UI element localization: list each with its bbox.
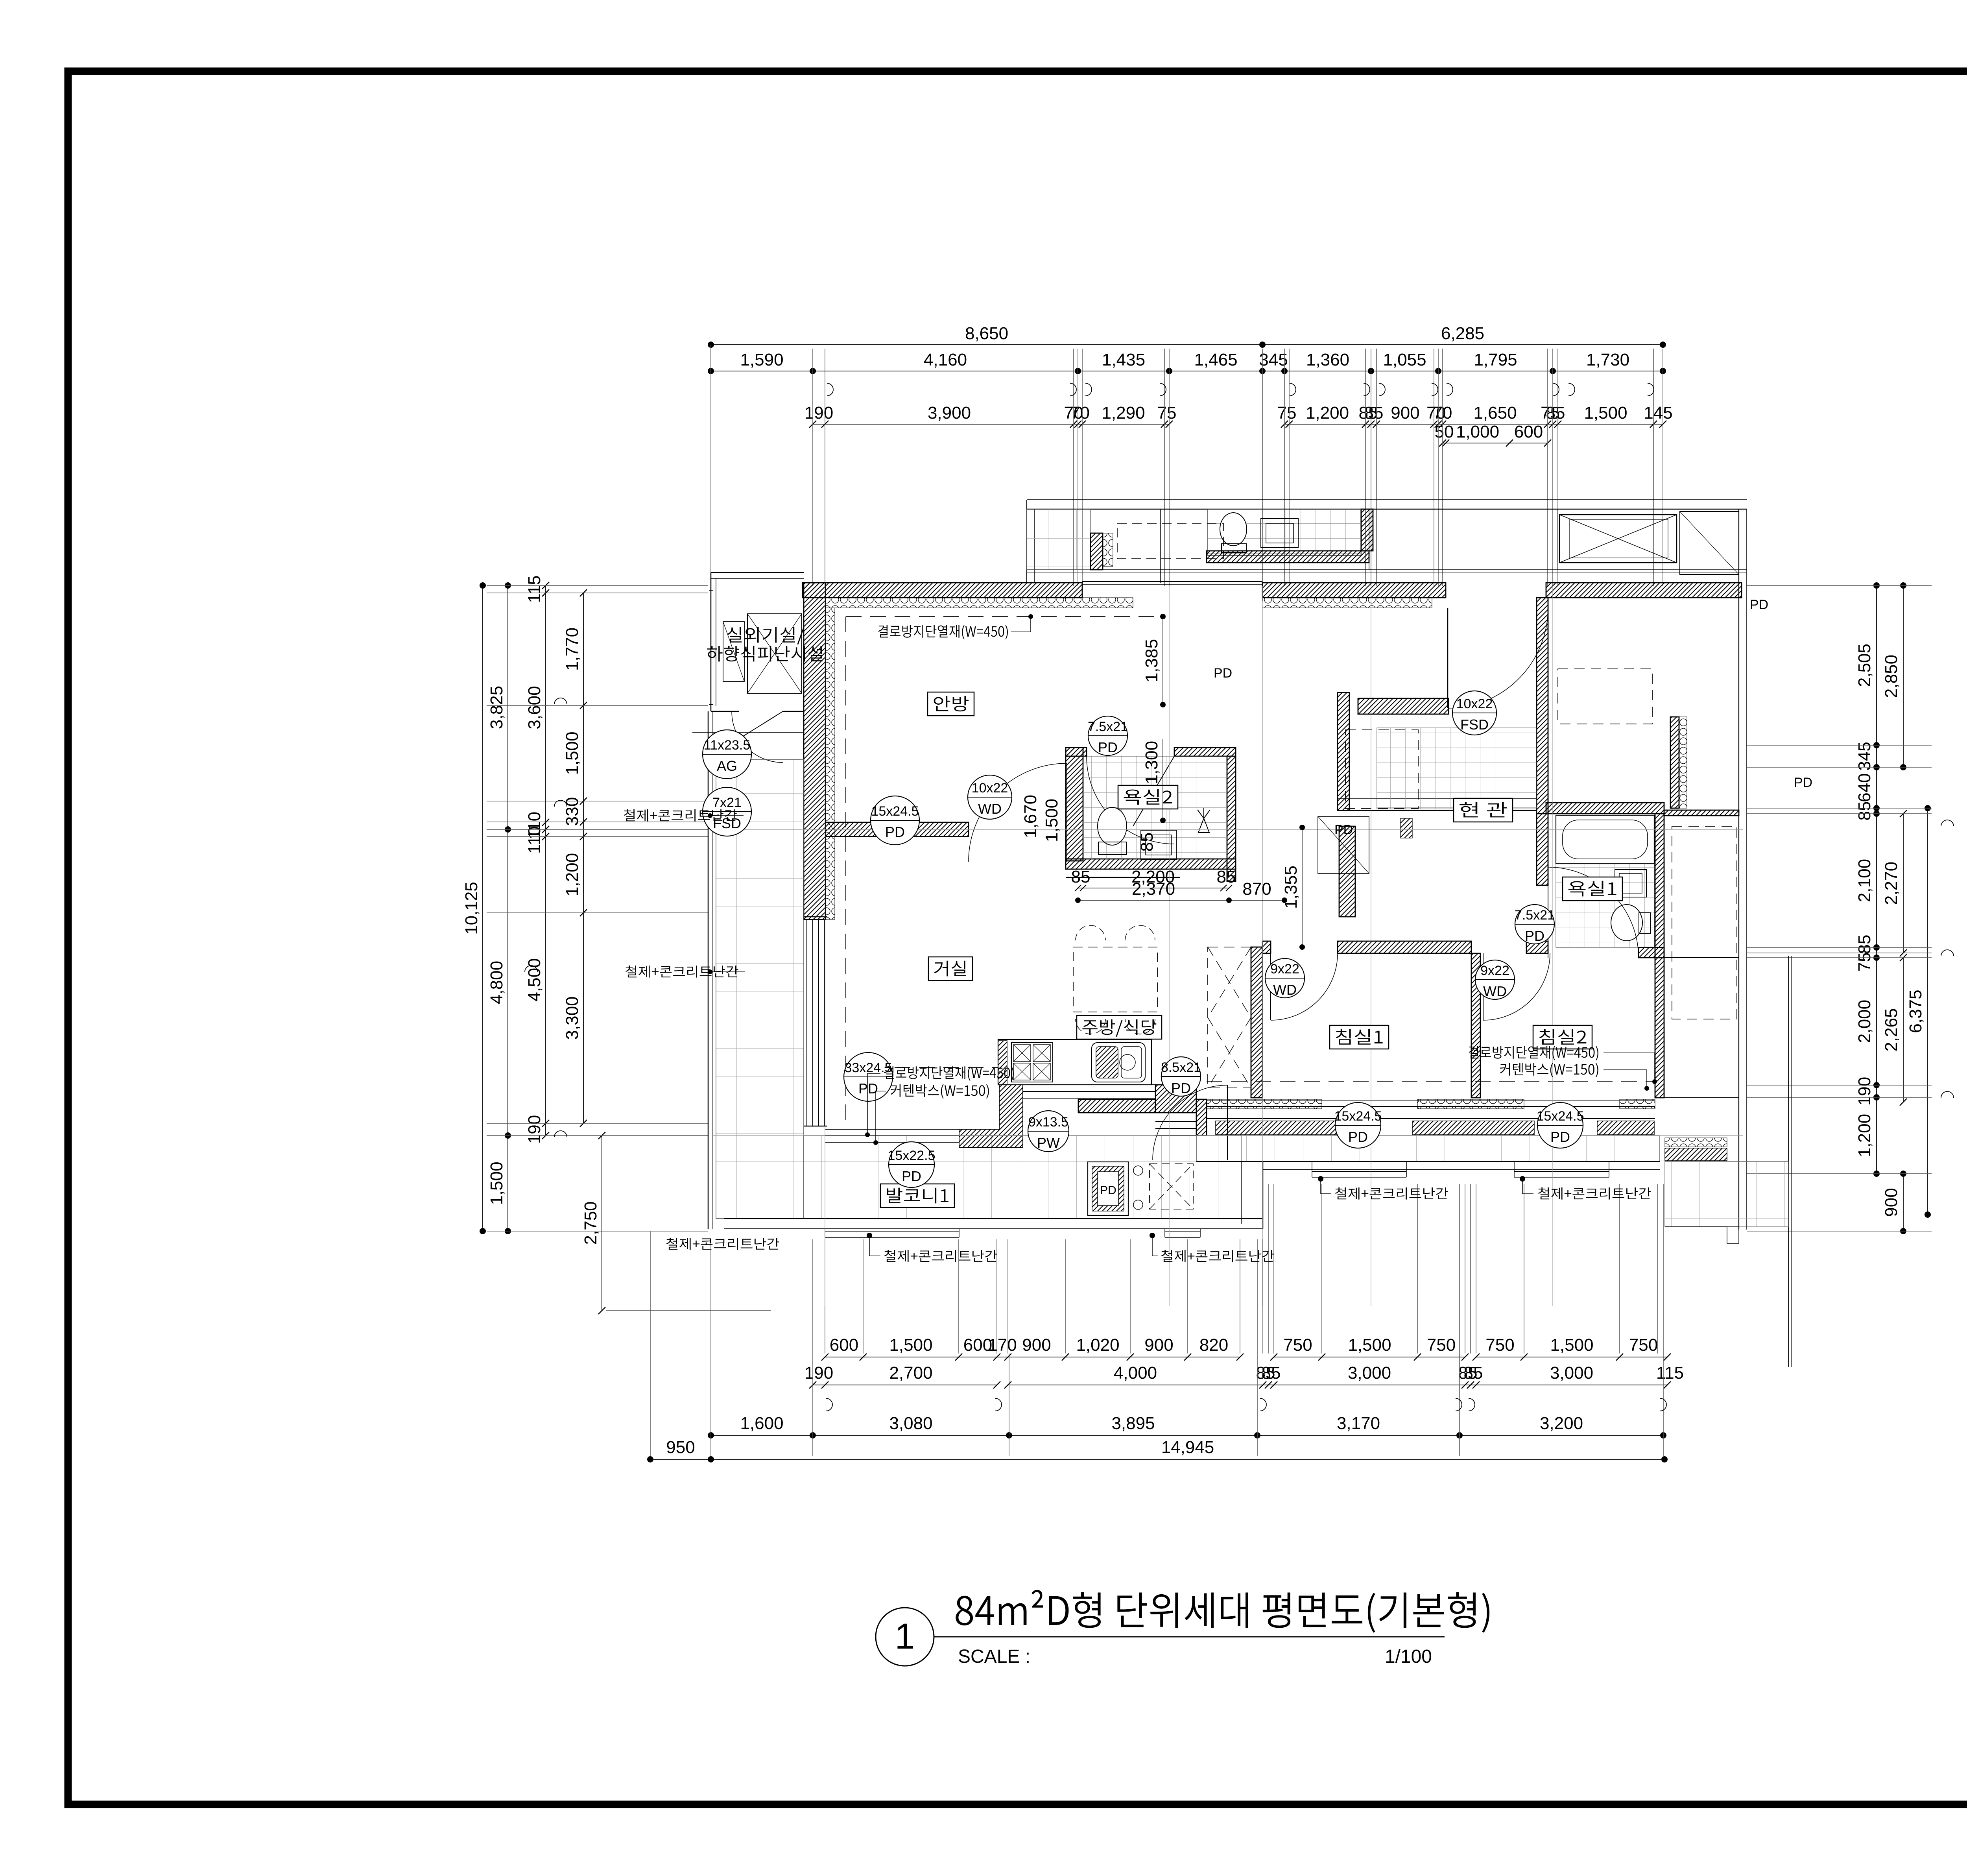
svg-text:PD: PD	[1794, 775, 1812, 790]
svg-text:50: 50	[1435, 422, 1454, 441]
svg-text:1/100: 1/100	[1385, 1646, 1432, 1667]
svg-text:2,850: 2,850	[1882, 655, 1901, 698]
svg-text:1,200: 1,200	[1855, 1114, 1874, 1157]
svg-text:1,500: 1,500	[889, 1335, 932, 1355]
svg-text:9x13.5: 9x13.5	[1028, 1115, 1068, 1130]
svg-text:9x22: 9x22	[1480, 963, 1509, 978]
svg-text:750: 750	[1283, 1335, 1312, 1355]
svg-text:1,300: 1,300	[1142, 741, 1161, 784]
svg-text:900: 900	[1882, 1188, 1901, 1217]
svg-text:345: 345	[1855, 742, 1874, 770]
svg-text:4,160: 4,160	[924, 350, 967, 369]
svg-text:PD: PD	[1098, 739, 1118, 755]
svg-text:2,505: 2,505	[1855, 644, 1874, 687]
svg-text:PD: PD	[1100, 1184, 1116, 1197]
svg-text:1,670: 1,670	[1021, 795, 1040, 838]
svg-text:1,360: 1,360	[1306, 350, 1349, 369]
svg-text:SCALE :: SCALE :	[958, 1646, 1030, 1667]
svg-text:85: 85	[1364, 403, 1384, 423]
svg-text:3,600: 3,600	[525, 686, 544, 729]
svg-text:3,900: 3,900	[928, 403, 971, 423]
svg-text:190: 190	[525, 1115, 544, 1144]
svg-text:115: 115	[525, 575, 544, 603]
svg-text:600: 600	[830, 1335, 858, 1355]
svg-text:115: 115	[1656, 1363, 1684, 1383]
svg-text:190: 190	[1855, 1077, 1874, 1106]
svg-text:1,290: 1,290	[1102, 403, 1145, 423]
svg-text:345: 345	[1259, 350, 1288, 369]
svg-text:85: 85	[1855, 935, 1874, 954]
svg-text:2,000: 2,000	[1855, 1000, 1874, 1043]
svg-text:3,895: 3,895	[1111, 1414, 1155, 1433]
svg-text:PW: PW	[1037, 1135, 1060, 1151]
svg-text:PD: PD	[902, 1168, 921, 1184]
svg-text:750: 750	[1485, 1335, 1514, 1355]
svg-text:75: 75	[1855, 953, 1874, 972]
svg-text:75: 75	[1157, 403, 1177, 423]
svg-text:9x22: 9x22	[1270, 962, 1299, 977]
svg-text:PD: PD	[1550, 1129, 1570, 1145]
svg-text:PD: PD	[885, 824, 905, 840]
svg-text:PD: PD	[1348, 1129, 1368, 1145]
svg-text:145: 145	[1644, 403, 1672, 423]
svg-text:1,590: 1,590	[740, 350, 783, 369]
svg-text:1,770: 1,770	[563, 628, 582, 671]
svg-text:14,945: 14,945	[1161, 1438, 1214, 1457]
svg-text:3,080: 3,080	[889, 1414, 932, 1433]
svg-text:1,500: 1,500	[1042, 799, 1061, 842]
svg-text:640: 640	[1855, 773, 1874, 802]
svg-text:PD: PD	[1214, 666, 1232, 681]
svg-text:1,500: 1,500	[1584, 403, 1627, 423]
svg-text:85: 85	[1262, 1363, 1281, 1383]
svg-text:15x22.5: 15x22.5	[888, 1148, 936, 1163]
svg-text:820: 820	[1199, 1335, 1228, 1355]
svg-text:6,375: 6,375	[1906, 990, 1925, 1033]
svg-text:1,435: 1,435	[1102, 350, 1145, 369]
svg-text:3,000: 3,000	[1348, 1363, 1391, 1383]
svg-text:AG: AG	[717, 758, 737, 774]
svg-text:PD: PD	[858, 1080, 878, 1097]
svg-text:870: 870	[1242, 879, 1271, 899]
svg-text:PD: PD	[1334, 822, 1353, 837]
svg-text:1,500: 1,500	[1348, 1335, 1391, 1355]
svg-text:190: 190	[805, 1363, 833, 1383]
svg-text:1,600: 1,600	[740, 1414, 783, 1433]
svg-text:7.5x21: 7.5x21	[1088, 719, 1128, 734]
svg-text:3,200: 3,200	[1540, 1414, 1583, 1433]
svg-text:WD: WD	[1483, 983, 1507, 999]
svg-text:WD: WD	[1273, 982, 1297, 998]
svg-text:8.5x21: 8.5x21	[1161, 1060, 1201, 1075]
svg-text:1,000: 1,000	[1456, 422, 1499, 441]
svg-text:2,265: 2,265	[1882, 1008, 1901, 1051]
svg-text:85: 85	[1217, 867, 1236, 886]
svg-text:1,650: 1,650	[1473, 403, 1517, 423]
svg-text:8,650: 8,650	[965, 324, 1008, 343]
svg-text:1,730: 1,730	[1586, 350, 1629, 369]
svg-text:190: 190	[805, 403, 833, 423]
svg-text:750: 750	[1427, 1335, 1456, 1355]
svg-text:900: 900	[1022, 1335, 1051, 1355]
svg-text:WD: WD	[978, 801, 1002, 817]
svg-text:900: 900	[1391, 403, 1419, 423]
svg-text:1,795: 1,795	[1474, 350, 1517, 369]
svg-text:900: 900	[1144, 1335, 1173, 1355]
svg-text:4,500: 4,500	[525, 958, 544, 1001]
svg-text:4,800: 4,800	[487, 961, 506, 1004]
svg-text:2,270: 2,270	[1882, 862, 1901, 905]
svg-text:11x23.5: 11x23.5	[704, 738, 750, 753]
svg-text:1,355: 1,355	[1281, 866, 1301, 909]
svg-text:2,700: 2,700	[889, 1363, 932, 1383]
svg-text:1,200: 1,200	[563, 853, 582, 896]
svg-text:PD: PD	[1525, 928, 1544, 944]
svg-text:1,500: 1,500	[563, 731, 582, 775]
svg-text:2,100: 2,100	[1855, 859, 1874, 902]
svg-text:FSD: FSD	[1460, 716, 1489, 733]
svg-text:15x24.5: 15x24.5	[1537, 1109, 1584, 1124]
svg-text:85: 85	[1855, 801, 1874, 821]
svg-text:15x24.5: 15x24.5	[1334, 1109, 1382, 1124]
svg-text:1: 1	[895, 1616, 915, 1656]
svg-text:3,000: 3,000	[1550, 1363, 1593, 1383]
svg-text:1,020: 1,020	[1076, 1335, 1119, 1355]
svg-text:7.5x21: 7.5x21	[1515, 908, 1555, 923]
svg-text:15x24.5: 15x24.5	[871, 804, 919, 819]
svg-text:85: 85	[1464, 1363, 1483, 1383]
svg-text:2,370: 2,370	[1132, 879, 1175, 899]
svg-text:1,200: 1,200	[1306, 403, 1349, 423]
svg-text:6,285: 6,285	[1441, 324, 1484, 343]
svg-text:PD: PD	[1171, 1080, 1191, 1096]
svg-text:330: 330	[563, 797, 582, 826]
svg-text:1,500: 1,500	[1550, 1335, 1593, 1355]
svg-text:3,825: 3,825	[487, 686, 506, 729]
svg-text:170: 170	[988, 1335, 1017, 1355]
svg-text:85: 85	[1137, 833, 1157, 852]
svg-text:85: 85	[1071, 867, 1091, 886]
svg-text:2,750: 2,750	[581, 1201, 600, 1245]
svg-text:75: 75	[1277, 403, 1297, 423]
svg-text:10,125: 10,125	[462, 882, 481, 935]
svg-text:PD: PD	[1750, 597, 1768, 612]
svg-text:600: 600	[1514, 422, 1543, 441]
svg-text:1,465: 1,465	[1194, 350, 1237, 369]
svg-text:1,500: 1,500	[487, 1161, 506, 1205]
svg-text:85: 85	[1546, 403, 1565, 423]
svg-text:3,170: 3,170	[1337, 1414, 1380, 1433]
svg-text:110: 110	[525, 826, 544, 854]
svg-text:3,300: 3,300	[563, 996, 582, 1040]
svg-text:1,055: 1,055	[1383, 350, 1426, 369]
svg-text:1,385: 1,385	[1142, 639, 1161, 682]
svg-text:750: 750	[1629, 1335, 1658, 1355]
svg-text:950: 950	[666, 1438, 695, 1457]
svg-text:7x21: 7x21	[712, 795, 742, 810]
svg-text:10x22: 10x22	[972, 781, 1008, 796]
svg-text:4,000: 4,000	[1114, 1363, 1157, 1383]
svg-text:10x22: 10x22	[1456, 696, 1493, 711]
